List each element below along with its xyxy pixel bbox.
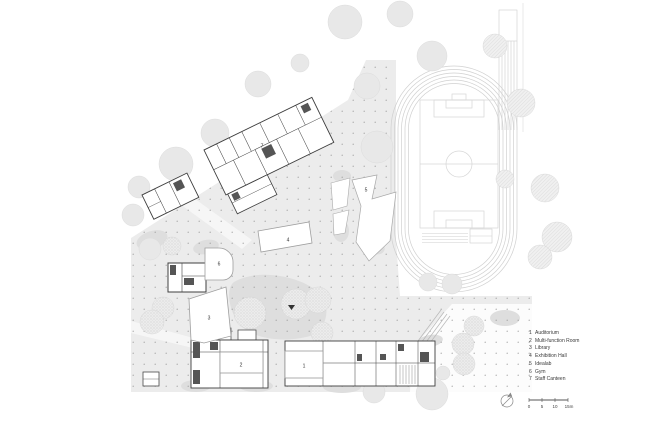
legend-label: Idealab — [535, 361, 551, 369]
north-arrow-icon — [501, 393, 513, 408]
legend-num: 7 — [529, 376, 532, 384]
label-4: 4 — [287, 237, 290, 243]
legend-num: 6 — [529, 369, 532, 377]
legend-label: Library — [535, 345, 550, 353]
legend-item-idealab: 5 Idealab — [529, 361, 579, 369]
scale-bar: 0 5 10 15m — [528, 398, 574, 409]
soccer-field — [420, 94, 498, 228]
legend-num: 1 — [529, 330, 532, 338]
label-7: 7 — [261, 143, 264, 149]
label-3: 3 — [208, 315, 211, 321]
label-1: 1 — [303, 363, 306, 369]
legend-item-gym: 6 Gym — [529, 369, 579, 377]
legend-num: 3 — [529, 345, 532, 353]
legend-item-exhibition-hall: 4 Exhibition Hall — [529, 353, 579, 361]
building-detached-small — [143, 372, 159, 386]
legend-item-auditorium: 1 Auditorium — [529, 330, 579, 338]
legend-label: Auditorium — [535, 330, 559, 338]
bleachers — [422, 229, 492, 243]
trees-hatched — [483, 34, 572, 269]
site-plan-page: 7 4 6 3 5 2 1 0 5 10 15m 1 Auditorium 2 … — [0, 0, 650, 436]
scale-tick-10: 10 — [552, 404, 558, 409]
legend-num: 2 — [529, 338, 532, 346]
legend-num: 5 — [529, 361, 532, 369]
label-6: 6 — [218, 261, 221, 267]
legend-num: 4 — [529, 353, 532, 361]
legend-item-multifunction-room: 2 Multi-function Room — [529, 338, 579, 346]
legend-label: Gym — [535, 369, 546, 377]
building-1-auditorium-block — [285, 341, 435, 386]
legend-label: Exhibition Hall — [535, 353, 567, 361]
label-5: 5 — [365, 187, 368, 193]
scale-tick-5: 5 — [541, 404, 544, 409]
legend-label: Multi-function Room — [535, 338, 579, 346]
scale-tick-15m: 15m — [565, 404, 574, 409]
label-2: 2 — [240, 362, 243, 368]
legend-item-staff-canteen: 7 Staff Canteen — [529, 376, 579, 384]
legend-label: Staff Canteen — [535, 376, 566, 384]
legend: 1 Auditorium 2 Multi-function Room 3 Lib… — [529, 330, 579, 384]
building-center-plan — [168, 263, 206, 292]
legend-item-library: 3 Library — [529, 345, 579, 353]
scale-tick-0: 0 — [528, 404, 531, 409]
